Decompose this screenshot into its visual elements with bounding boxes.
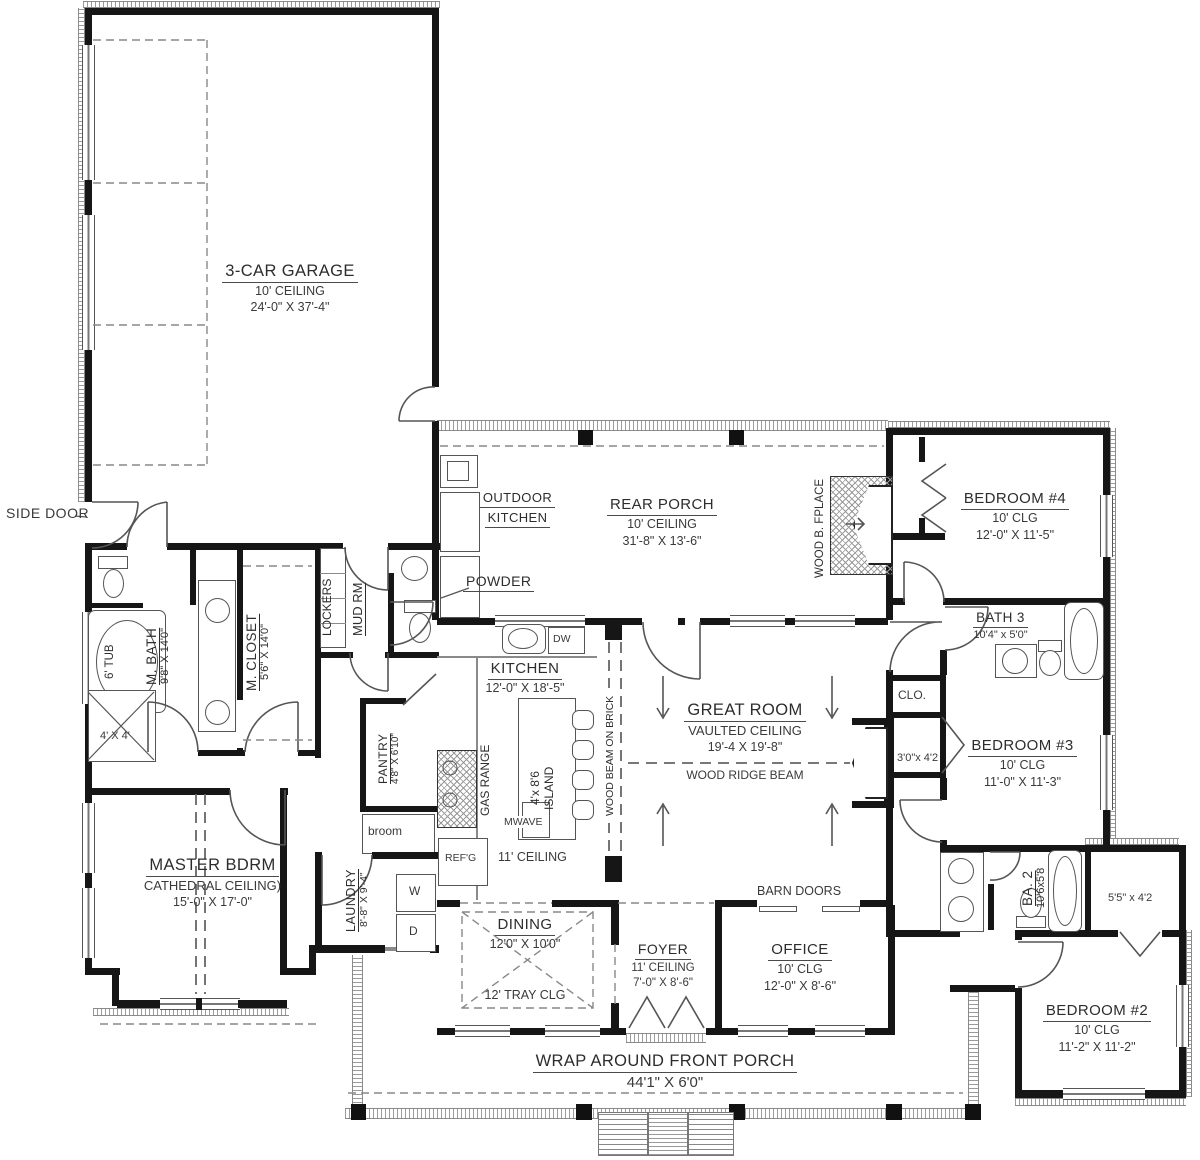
room-label-dining: DINING 12'0" X 10'0" xyxy=(455,915,595,953)
door-arc xyxy=(127,502,167,547)
label-text: MUD RM xyxy=(350,566,365,652)
label-line: BATH 3 xyxy=(948,608,1053,628)
door-arc xyxy=(390,602,433,645)
room-label-outdoor-kitchen: OUTDOOR KITCHEN xyxy=(470,488,565,528)
garage-bays xyxy=(93,40,207,465)
room-label-bedroom2: BEDROOM #2 10' CLG 11'-2" X 11'-2" xyxy=(1012,1001,1182,1055)
door-arc xyxy=(904,562,944,602)
room-label-great-room: GREAT ROOM VAULTED CEILING 19'-4 X 19'-8… xyxy=(655,700,835,755)
label-text: GREAT ROOM xyxy=(684,700,805,722)
label-line: FOYER xyxy=(608,940,718,960)
door-arc xyxy=(1018,942,1063,987)
side-door-label: SIDE DOOR xyxy=(6,505,89,521)
label-line: GREAT ROOM xyxy=(655,700,835,722)
label-line: OUTDOOR xyxy=(470,488,565,508)
label-line: DINING xyxy=(455,915,595,936)
label-text: POWDER xyxy=(463,573,534,592)
label-text: WOOD B. FPLACE xyxy=(814,478,826,578)
label-text: LAUNDRY xyxy=(344,858,358,942)
label-text: 15'-0" X 17'-0" xyxy=(120,895,305,910)
room-label-master: MASTER BDRM CATHEDRAL CEILING) 15'-0" X … xyxy=(120,855,305,910)
label-text: 5'6" X 14'0" xyxy=(259,606,271,698)
wall xyxy=(75,516,469,760)
floor-plan: 3-CAR GARAGE 10' CEILING 24'-0" X 37'-4"… xyxy=(0,0,1200,1160)
room-label-bath3: BATH 3 10'4" x 5'0" xyxy=(948,608,1053,643)
label-line: BEDROOM #4 xyxy=(925,489,1105,510)
label-text: 4'8" X 6'10" xyxy=(390,722,401,796)
label-text: OUTDOOR xyxy=(480,490,555,508)
label-text: ISLAND xyxy=(542,742,556,834)
room-label-powder: POWDER xyxy=(463,572,534,592)
room-label-pantry: PANTRY 4'8" X 6'10" xyxy=(376,722,401,796)
room-name: 3-CAR GARAGE xyxy=(222,261,358,283)
label-line: KITCHEN xyxy=(470,508,565,528)
label-text: 11' CEILING xyxy=(608,961,718,975)
refg-label: REF'G xyxy=(445,852,476,864)
washer-label: W xyxy=(409,884,420,898)
label-text: BEDROOM #3 xyxy=(968,737,1076,757)
dryer-label: D xyxy=(409,924,418,938)
fireplace-arrow xyxy=(846,518,864,530)
door-arc xyxy=(900,800,942,842)
label-text: MASTER BDRM xyxy=(146,855,278,877)
label-text: 8'-8" X 9'-4" xyxy=(358,858,370,942)
room-label-foyer: FOYER 11' CEILING 7'-0" X 8'-6" xyxy=(608,940,718,990)
door-arc xyxy=(92,502,138,548)
label-text: 9'8" X 14'0" xyxy=(159,612,171,700)
label-text: 19'-4 X 19'-8" xyxy=(655,740,835,755)
label-text: KITCHEN xyxy=(485,510,551,528)
porch-label: WRAP AROUND FRONT PORCH 44'1" X 6'0" xyxy=(510,1051,820,1092)
label-line: WRAP AROUND FRONT PORCH xyxy=(510,1051,820,1073)
label-text: 10' CEILING xyxy=(200,284,380,299)
label-text: 10' CLG xyxy=(1012,1023,1182,1038)
barn-doors-label: BARN DOORS xyxy=(757,884,841,898)
label-text: REAR PORCH xyxy=(607,496,717,516)
plan-linework xyxy=(0,0,1200,1160)
label-text: BEDROOM #2 xyxy=(1043,1002,1151,1022)
label-line: KITCHEN xyxy=(455,659,595,680)
vault-arrow xyxy=(826,804,838,846)
label-text: 6' TUB xyxy=(104,630,116,694)
label-text: 11'-0" X 11'-3" xyxy=(935,775,1110,790)
wall xyxy=(92,387,1160,1028)
label-text: VAULTED CEILING xyxy=(655,723,835,739)
ridge-beam-label: WOOD RIDGE BEAM xyxy=(660,768,830,783)
burner xyxy=(443,761,457,775)
label-text: 10'4" x 5'0" xyxy=(948,629,1053,642)
label-text: KITCHEN xyxy=(488,660,563,680)
label-text: WRAP AROUND FRONT PORCH xyxy=(533,1051,798,1073)
label-text: M. CLOSET xyxy=(244,606,259,698)
label-text: 12'0" X 10'0" xyxy=(455,937,595,952)
room-label-mcloset: M. CLOSET 5'6" X 14'0" xyxy=(244,606,271,698)
closet-label: 5'5" x 4'2 xyxy=(1108,892,1152,904)
shower-label: 4' X 4' xyxy=(100,730,130,742)
mwave-label: MWAVE xyxy=(504,816,543,828)
tray-ceiling-label: 12' TRAY CLG xyxy=(460,988,590,1003)
label-line: BEDROOM #2 xyxy=(1012,1001,1182,1022)
label-text: OFFICE xyxy=(768,941,831,961)
label-text: DINING xyxy=(495,916,556,936)
broom-label: broom xyxy=(368,824,402,838)
room-label-office: OFFICE 10' CLG 12'-0" X 8'-6" xyxy=(730,940,870,994)
room-label-kitchen: KITCHEN 12'-0" X 18'-5" xyxy=(455,659,595,697)
room-label-mbath: M. BATH 9'8" X 14'0" xyxy=(144,612,171,700)
label-text: 10' CLG xyxy=(925,511,1105,526)
door-arc xyxy=(399,387,435,421)
vault-arrow xyxy=(657,804,669,846)
label-line: 3-CAR GARAGE xyxy=(200,261,380,283)
label-text: 10'6x5'8 xyxy=(1035,848,1047,928)
label-text: 12'-0" X 11'-5" xyxy=(925,528,1105,543)
label-text: 10' CEILING xyxy=(572,517,752,532)
door-arc xyxy=(245,702,298,752)
room-label-laundry: LAUNDRY 8'-8" X 9'-4" xyxy=(344,858,370,942)
room-label-bedroom3: BEDROOM #3 10' CLG 11'-0" X 11'-3" xyxy=(935,736,1110,790)
label-text: BEDROOM #4 xyxy=(961,490,1069,510)
closet-label: 3'0"x 4'2 xyxy=(897,752,938,764)
label-text: WOOD BEAM ON BRICK xyxy=(604,688,616,823)
closet-label: CLO. xyxy=(898,688,926,702)
lockers-label: LOCKERS xyxy=(320,560,334,655)
door-arc xyxy=(350,653,388,691)
kitchen-ceiling-label: 11' CEILING xyxy=(498,850,567,864)
door-arc xyxy=(990,852,1020,880)
label-text: 7'-0" X 8'-6" xyxy=(608,976,718,990)
burner xyxy=(443,793,457,807)
door-arc xyxy=(890,622,942,672)
tub-label: 6' TUB xyxy=(104,630,116,694)
label-text: BATH 3 xyxy=(973,610,1028,628)
wood-beam-label: WOOD BEAM ON BRICK xyxy=(604,688,616,823)
fireplace-label: WOOD B. FPLACE xyxy=(814,478,826,578)
label-text: M. BATH xyxy=(144,612,159,700)
label-text: GAS RANGE xyxy=(478,733,492,828)
label-text: BA. 2 xyxy=(1020,848,1035,928)
room-label-bath2: BA. 2 10'6x5'8 xyxy=(1020,848,1047,928)
label-text: 12'-0" X 8'-6" xyxy=(730,979,870,994)
label-text: 10' CLG xyxy=(730,962,870,977)
door-arc xyxy=(148,702,198,752)
label-line: BEDROOM #3 xyxy=(935,736,1110,757)
leader-line xyxy=(75,516,469,598)
shower-glass xyxy=(88,692,154,760)
mudrm-label: MUD RM xyxy=(350,566,365,652)
label-text: 24'-0" X 37'-4" xyxy=(200,300,380,315)
label-line: REAR PORCH xyxy=(572,495,752,516)
label-line: MASTER BDRM xyxy=(120,855,305,877)
french-door xyxy=(629,997,704,1028)
room-label-bedroom4: BEDROOM #4 10' CLG 12'-0" X 11'-5" xyxy=(925,489,1105,543)
label-text: 44'1" X 6'0" xyxy=(510,1074,820,1092)
label-text: 31'-8" X 13'-6" xyxy=(572,534,752,549)
label-text: 10' CLG xyxy=(935,758,1110,773)
door-arc xyxy=(643,622,700,679)
label-text: 11'-2" X 11'-2" xyxy=(1012,1040,1182,1055)
label-text: PANTRY xyxy=(376,722,390,796)
gas-range-label: GAS RANGE xyxy=(478,733,492,828)
label-text: CATHEDRAL CEILING) xyxy=(120,878,305,894)
dw-label: DW xyxy=(553,633,571,645)
label-text: FOYER xyxy=(635,941,691,960)
label-line: OFFICE xyxy=(730,940,870,961)
label-text: 12'-0" X 18'-5" xyxy=(455,681,595,696)
door-arc xyxy=(230,790,285,845)
bifold-door xyxy=(1120,932,1160,956)
room-label-rear-porch: REAR PORCH 10' CEILING 31'-8" X 13'-6" xyxy=(572,495,752,549)
pantry-door xyxy=(403,674,436,705)
label-text: LOCKERS xyxy=(320,560,334,655)
room-label-garage: 3-CAR GARAGE 10' CEILING 24'-0" X 37'-4" xyxy=(200,261,380,316)
